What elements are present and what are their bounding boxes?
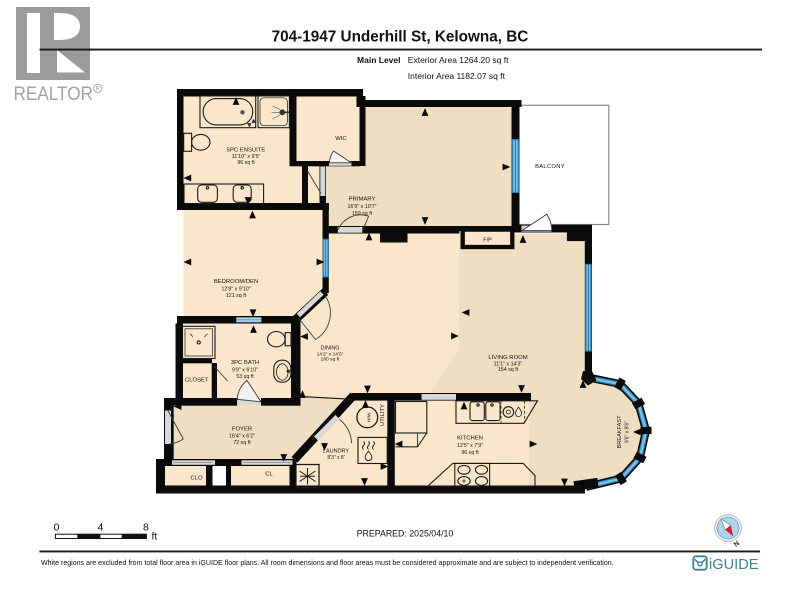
- svg-text:12'8" x 9'10": 12'8" x 9'10": [221, 286, 250, 292]
- svg-text:BALCONY: BALCONY: [535, 164, 565, 170]
- svg-text:H/W: H/W: [366, 412, 372, 422]
- svg-text:DINING: DINING: [321, 346, 340, 352]
- svg-text:Exterior Area 1264.20 sq ft: Exterior Area 1264.20 sq ft: [408, 55, 509, 65]
- svg-text:8: 8: [143, 522, 149, 534]
- svg-text:Main Level: Main Level: [357, 55, 400, 65]
- svg-text:14'2" x 14'5": 14'2" x 14'5": [317, 351, 344, 357]
- svg-text:16'4" x 6'2": 16'4" x 6'2": [229, 434, 255, 440]
- svg-text:96 sq ft: 96 sq ft: [461, 450, 479, 456]
- svg-text:KITCHEN: KITCHEN: [457, 435, 483, 441]
- svg-text:PRIMARY: PRIMARY: [349, 197, 376, 203]
- svg-text:96 sq ft: 96 sq ft: [237, 160, 255, 166]
- svg-text:121 sq ft: 121 sq ft: [226, 293, 247, 299]
- svg-text:FOYER: FOYER: [232, 426, 252, 432]
- svg-text:BREAKFAST: BREAKFAST: [617, 415, 623, 449]
- svg-text:CL: CL: [265, 472, 273, 478]
- svg-text:5PC ENSUITE: 5PC ENSUITE: [227, 147, 266, 153]
- svg-text:16'9" x 10'7": 16'9" x 10'7": [347, 204, 376, 210]
- svg-text:8'3" x 8': 8'3" x 8': [327, 455, 344, 461]
- svg-text:iGUIDE: iGUIDE: [709, 557, 759, 573]
- svg-text:White regions are excluded fro: White regions are excluded from total fl…: [41, 560, 614, 567]
- svg-text:UTILITY: UTILITY: [380, 404, 386, 426]
- svg-text:0: 0: [54, 522, 60, 534]
- svg-text:PREPARED: 2025/04/10: PREPARED: 2025/04/10: [357, 529, 454, 539]
- svg-text:LIVING ROOM: LIVING ROOM: [488, 355, 527, 361]
- svg-text:ft: ft: [152, 531, 158, 543]
- svg-text:4: 4: [97, 522, 103, 534]
- svg-text:9'6" x 9'6": 9'6" x 9'6": [625, 421, 631, 443]
- svg-text:180 sq ft: 180 sq ft: [321, 356, 340, 362]
- svg-text:53 sq ft: 53 sq ft: [236, 374, 254, 380]
- svg-text:CLO: CLO: [190, 476, 203, 482]
- svg-text:154 sq ft: 154 sq ft: [498, 367, 519, 373]
- svg-text:159 sq ft: 159 sq ft: [352, 211, 373, 217]
- svg-text:Interior Area 1182.07 sq ft: Interior Area 1182.07 sq ft: [408, 71, 506, 81]
- svg-text:9'9" x 6'10": 9'9" x 6'10": [232, 367, 258, 373]
- svg-text:LAUNDRY: LAUNDRY: [323, 449, 350, 455]
- svg-text:WIC: WIC: [335, 136, 347, 142]
- svg-text:BEDROOM/DEN: BEDROOM/DEN: [214, 279, 259, 285]
- svg-text:704-1947 Underhill St, Kelowna: 704-1947 Underhill St, Kelowna, BC: [272, 29, 529, 46]
- svg-text:12'5" x 7'9": 12'5" x 7'9": [457, 443, 483, 449]
- svg-text:CLOSET: CLOSET: [185, 378, 209, 384]
- svg-text:F/P: F/P: [483, 238, 492, 244]
- svg-text:3PC BATH: 3PC BATH: [231, 360, 259, 366]
- svg-text:R: R: [96, 87, 101, 93]
- svg-text:REALTOR: REALTOR: [14, 82, 93, 104]
- svg-text:72 sq ft: 72 sq ft: [233, 440, 251, 446]
